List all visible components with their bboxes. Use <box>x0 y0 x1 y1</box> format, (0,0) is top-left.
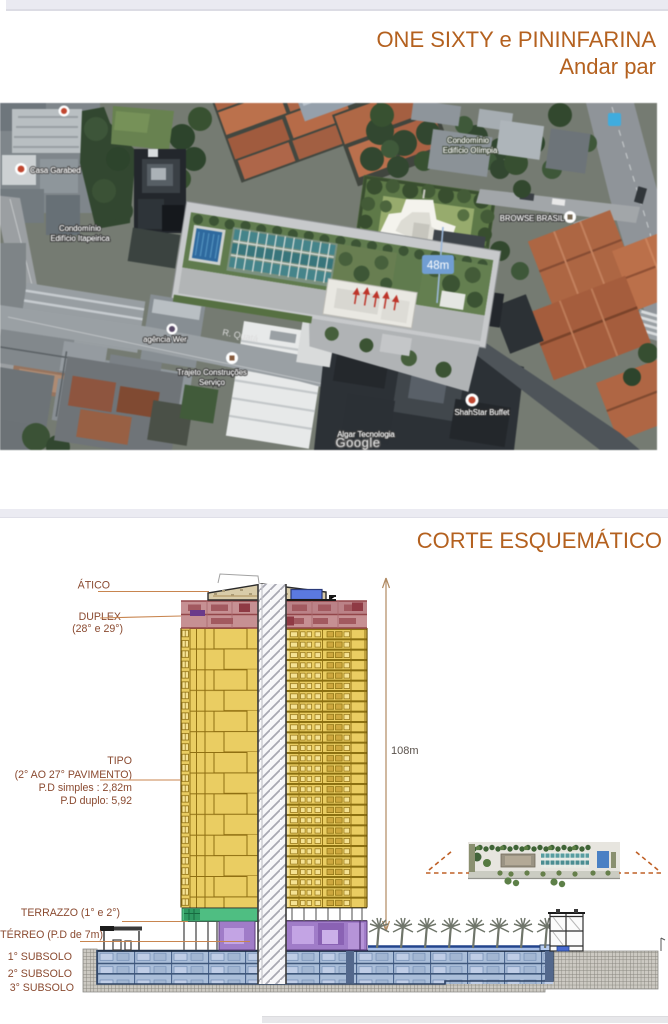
svg-text:(2° AO 27° PAVIMENTO): (2° AO 27° PAVIMENTO) <box>15 769 132 781</box>
svg-text:Edifício Olímpia: Edifício Olímpia <box>443 146 498 155</box>
svg-text:ÁTICO: ÁTICO <box>78 579 110 592</box>
svg-text:Condomínio: Condomínio <box>59 224 102 233</box>
svg-text:TÉRREO (P.D de 7m): TÉRREO (P.D de 7m) <box>0 928 103 941</box>
svg-text:Google: Google <box>336 435 381 450</box>
svg-text:2° SUBSOLO: 2° SUBSOLO <box>8 968 72 980</box>
svg-text:Serviço: Serviço <box>199 378 226 387</box>
svg-text:BROWSE BRASIL: BROWSE BRASIL <box>500 214 565 223</box>
svg-text:1° SUBSOLO: 1° SUBSOLO <box>8 951 72 963</box>
svg-text:TERRAZZO (1° e 2°): TERRAZZO (1° e 2°) <box>21 907 120 919</box>
svg-text:(28° e 29°): (28° e 29°) <box>72 623 123 635</box>
svg-text:48m: 48m <box>427 260 449 272</box>
svg-text:DUPLEX: DUPLEX <box>79 611 121 623</box>
svg-text:108m: 108m <box>391 745 419 757</box>
svg-text:P.D duplo: 5,92: P.D duplo: 5,92 <box>60 795 132 807</box>
svg-text:Trajeto Construções: Trajeto Construções <box>177 368 247 377</box>
svg-text:TIPO: TIPO <box>107 755 132 767</box>
svg-text:Casa Garabed: Casa Garabed <box>30 166 81 175</box>
svg-text:agência Wer: agência Wer <box>143 335 187 344</box>
svg-text:ShahStar Buffet: ShahStar Buffet <box>455 408 511 417</box>
svg-text:P.D simples : 2,82m: P.D simples : 2,82m <box>39 782 133 794</box>
svg-text:Edifício Itapeirica: Edifício Itapeirica <box>50 234 110 243</box>
svg-text:Condomínio: Condomínio <box>447 136 490 145</box>
svg-text:3° SUBSOLO: 3° SUBSOLO <box>10 982 74 994</box>
